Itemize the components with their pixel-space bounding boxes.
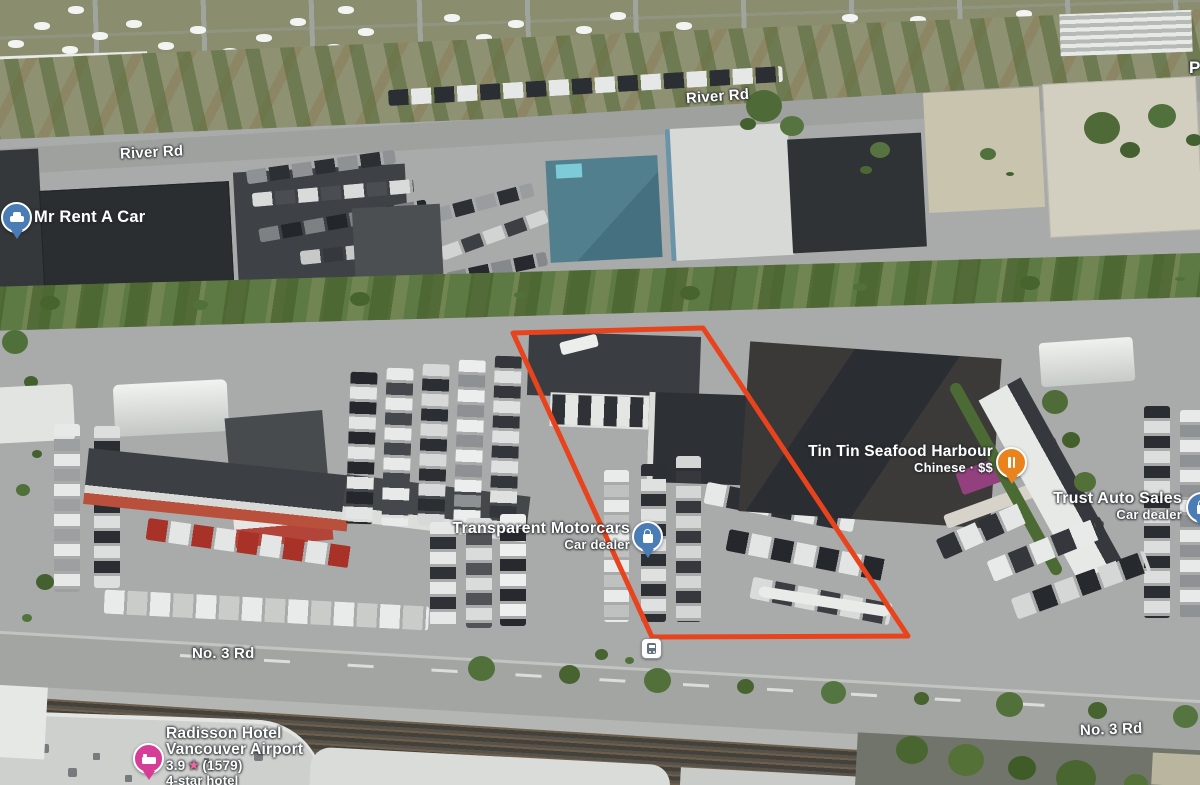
place-label-radisson-hotel[interactable]: Radisson Hotel Vancouver Airport 3.9 ★ (… (166, 726, 303, 785)
parked-cars (676, 456, 701, 622)
road-label-no3-rd-west: No. 3 Rd (192, 645, 254, 662)
place-label-transparent-motorcars[interactable]: Transparent Motorcars Car dealer (452, 521, 630, 552)
shopping-bag-icon (643, 534, 653, 543)
road-label-no3-rd-east: No. 3 Rd (1080, 720, 1143, 739)
trees (896, 736, 928, 764)
pool-patch (556, 163, 583, 178)
industrial-building (923, 87, 1045, 213)
parked-cars (381, 368, 413, 527)
rooftop (1151, 752, 1200, 785)
outlined-property-building (527, 331, 701, 401)
star-icon: ★ (188, 758, 199, 773)
street-trees (468, 656, 495, 681)
canopy (1039, 337, 1136, 387)
fork-knife-icon (1005, 456, 1018, 469)
moored-boats (8, 40, 24, 48)
road-label-partial: P (1189, 58, 1200, 78)
place-category: Chinese · $$ (808, 460, 993, 475)
parked-cars (725, 529, 886, 581)
parked-cars (417, 364, 450, 527)
place-name: Trust Auto Sales (1053, 490, 1182, 507)
industrial-building (787, 133, 927, 254)
place-name-line2: Vancouver Airport (166, 742, 303, 758)
review-count: (1579) (202, 758, 242, 773)
industrial-building (1042, 76, 1200, 238)
parked-cars (54, 424, 80, 592)
place-category: 4-star hotel (166, 773, 303, 785)
trees (1042, 390, 1068, 414)
car-icon (10, 216, 24, 222)
shopping-bag-icon (1197, 505, 1200, 514)
industrial-building (665, 123, 795, 261)
bed-icon (142, 757, 156, 764)
hotel-pin[interactable] (133, 743, 164, 774)
canopy-tent (113, 379, 230, 437)
restaurant-pin[interactable] (996, 447, 1027, 478)
place-category: Car dealer (1053, 507, 1182, 522)
place-label-trust-auto-sales[interactable]: Trust Auto Sales Car dealer (1053, 491, 1182, 522)
bus-icon (647, 643, 656, 654)
bushes (40, 296, 60, 310)
place-name-line1: Radisson Hotel (166, 726, 303, 742)
satellite-map-view[interactable]: River Rd River Rd No. 3 Rd No. 3 Rd P Mr… (0, 0, 1200, 785)
place-label-tin-tin-seafood-harbour[interactable]: Tin Tin Seafood Harbour Chinese · $$ (808, 444, 993, 475)
road-label-river-rd-west: River Rd (120, 142, 184, 162)
place-name: Transparent Motorcars (452, 520, 630, 537)
rating-value: 3.9 (166, 758, 185, 773)
place-rating: 3.9 ★ (1579) (166, 758, 303, 773)
car-rental-pin[interactable] (1, 202, 32, 233)
bus-stop-icon[interactable] (641, 638, 662, 659)
trees (746, 90, 782, 122)
place-label-mr-rent-a-car[interactable]: Mr Rent A Car (34, 209, 145, 225)
rooftop (0, 685, 48, 760)
restaurant-building (738, 341, 1001, 528)
place-name: Tin Tin Seafood Harbour (808, 443, 993, 460)
parked-cars (345, 372, 377, 525)
shopping-bag-pin[interactable] (632, 521, 663, 552)
service-canopy (549, 392, 654, 430)
parked-cars (104, 590, 430, 631)
trees (2, 330, 28, 354)
place-category: Car dealer (452, 537, 630, 552)
greenhouse-roof (1059, 10, 1192, 57)
